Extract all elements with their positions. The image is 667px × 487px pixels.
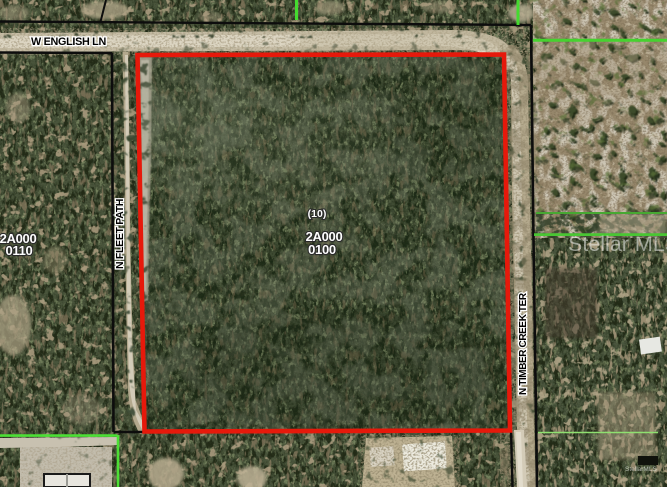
svg-text:0100: 0100: [308, 242, 336, 257]
svg-text:0110: 0110: [5, 243, 32, 258]
svg-text:N TIMBER CREEK TER: N TIMBER CREEK TER: [518, 292, 529, 395]
svg-text:W ENGLISH LN: W ENGLISH LN: [31, 36, 106, 48]
svg-text:Stellar MLS: Stellar MLS: [568, 232, 667, 256]
svg-text:(10): (10): [308, 208, 327, 220]
svg-text:N FLEET PATH: N FLEET PATH: [114, 199, 126, 269]
svg-text:StellarMLS: StellarMLS: [625, 466, 657, 473]
